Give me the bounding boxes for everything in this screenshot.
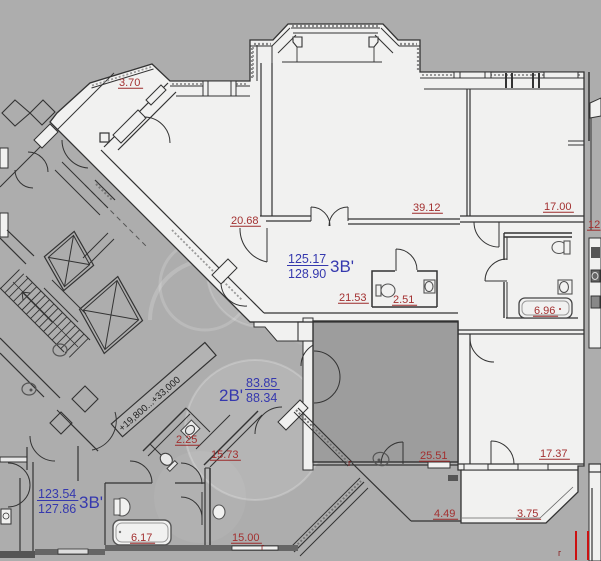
svg-text:25.51: 25.51 <box>420 450 448 462</box>
svg-text:20.68: 20.68 <box>231 215 259 227</box>
svg-text:6.17: 6.17 <box>131 532 152 544</box>
svg-text:88.34: 88.34 <box>246 391 277 405</box>
svg-text:3В': 3В' <box>79 493 103 512</box>
svg-text:125.17: 125.17 <box>288 252 326 266</box>
svg-text:2.51: 2.51 <box>393 294 414 306</box>
svg-text:4.49: 4.49 <box>434 508 455 520</box>
svg-text:128.90: 128.90 <box>288 267 326 281</box>
svg-text:3В': 3В' <box>330 257 354 276</box>
svg-text:2.25: 2.25 <box>176 434 197 446</box>
svg-text:2В': 2В' <box>219 386 243 405</box>
svg-text:17.00: 17.00 <box>544 201 572 213</box>
svg-text:15.73: 15.73 <box>211 449 239 461</box>
svg-text:6.96: 6.96 <box>534 305 555 317</box>
svg-text:123.54: 123.54 <box>38 487 76 501</box>
svg-text:83.85: 83.85 <box>246 376 277 390</box>
svg-text:3.70: 3.70 <box>119 77 140 89</box>
svg-text:3.75: 3.75 <box>517 508 538 520</box>
svg-text:17.37: 17.37 <box>540 448 568 460</box>
svg-text:39.12: 39.12 <box>413 202 441 214</box>
svg-text:15.00: 15.00 <box>232 532 260 544</box>
svg-text:21.53: 21.53 <box>339 292 367 304</box>
svg-text:127.86: 127.86 <box>38 502 76 516</box>
svg-text:12: 12 <box>588 219 600 231</box>
